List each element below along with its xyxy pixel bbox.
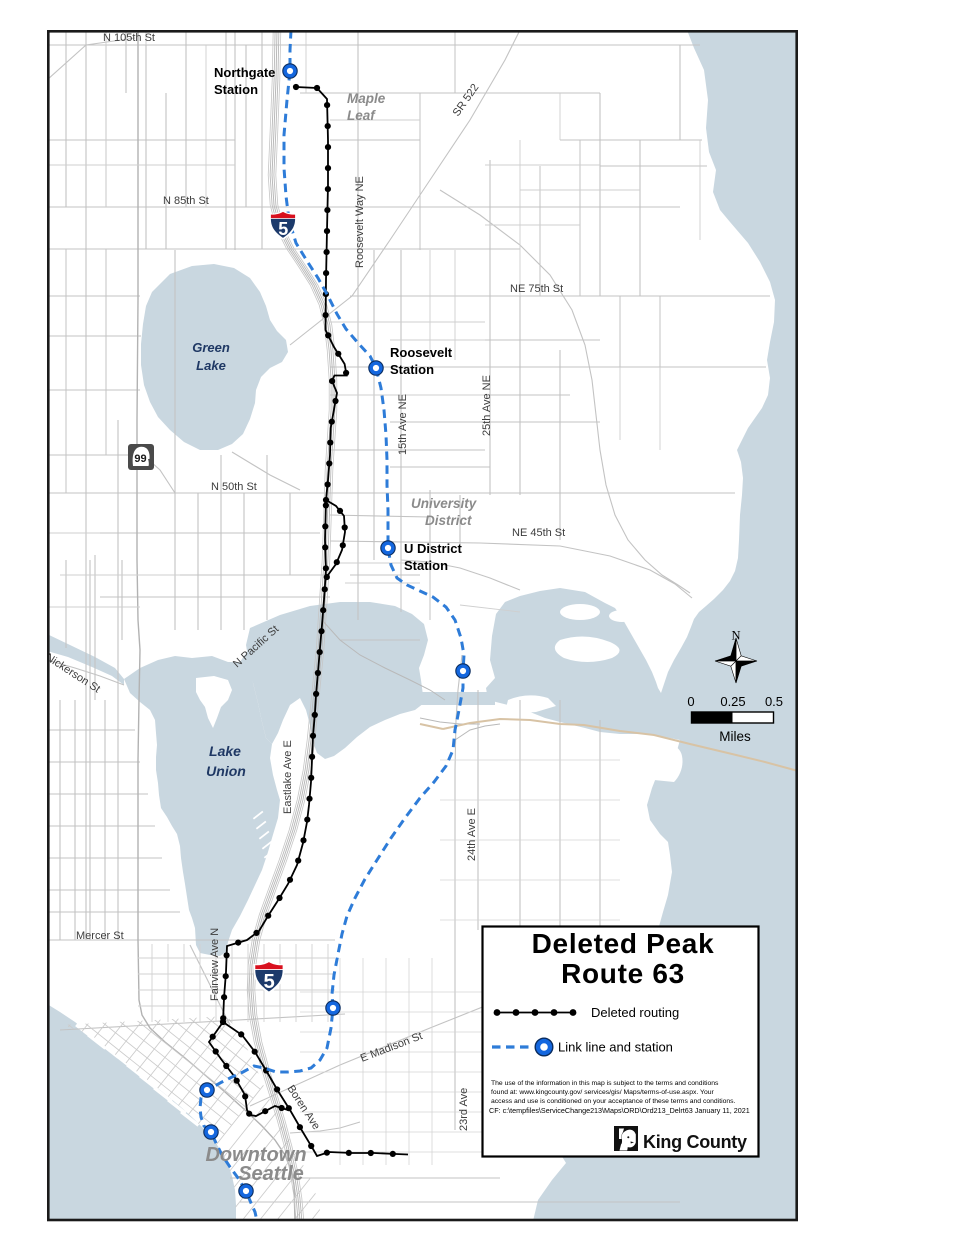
svg-text:N 50th St: N 50th St — [211, 481, 257, 493]
svg-text:NE 75th St: NE 75th St — [510, 283, 563, 295]
svg-text:Miles: Miles — [719, 729, 751, 744]
svg-text:25th Ave NE: 25th Ave NE — [481, 375, 493, 436]
svg-text:5: 5 — [264, 971, 275, 993]
svg-text:Roosevelt: Roosevelt — [390, 345, 453, 360]
svg-text:99: 99 — [134, 453, 146, 465]
svg-text:Lake: Lake — [196, 358, 226, 373]
svg-text:0.25: 0.25 — [720, 694, 745, 709]
svg-text:Station: Station — [404, 558, 448, 573]
svg-text:Station: Station — [390, 362, 434, 377]
svg-text:Union: Union — [206, 763, 246, 779]
svg-text:0: 0 — [687, 694, 694, 709]
svg-text:Maple: Maple — [347, 91, 386, 106]
svg-text:found at: www.kingcounty.gov/: found at: www.kingcounty.gov/ services/g… — [491, 1089, 714, 1096]
svg-text:23rd Ave: 23rd Ave — [458, 1088, 470, 1131]
svg-text:King County: King County — [643, 1132, 747, 1152]
svg-text:N 85th St: N 85th St — [163, 195, 209, 207]
svg-text:Northgate: Northgate — [214, 65, 275, 80]
svg-text:Eastlake Ave E: Eastlake Ave E — [282, 740, 294, 814]
svg-text:U District: U District — [404, 541, 462, 556]
svg-text:University: University — [411, 496, 478, 511]
svg-text:NE 45th St: NE 45th St — [512, 527, 565, 539]
svg-text:Roosevelt Way NE: Roosevelt Way NE — [354, 176, 366, 268]
svg-text:Leaf: Leaf — [347, 108, 376, 123]
svg-text:24th Ave E: 24th Ave E — [466, 808, 478, 861]
svg-text:N: N — [731, 629, 740, 643]
svg-text:Station: Station — [214, 82, 258, 97]
svg-text:Mercer St: Mercer St — [76, 930, 124, 942]
svg-text:Green: Green — [192, 340, 230, 355]
svg-text:Deleted Peak: Deleted Peak — [532, 928, 715, 959]
svg-text:CF: c:\tempfiles\ServiceChang: CF: c:\tempfiles\ServiceChange213\Maps\O… — [489, 1106, 750, 1115]
svg-text:Link line and station: Link line and station — [558, 1040, 673, 1055]
svg-text:5: 5 — [278, 219, 288, 239]
svg-text:15th Ave NE: 15th Ave NE — [397, 394, 409, 455]
svg-text:Fairview Ave N: Fairview Ave N — [209, 928, 221, 1001]
svg-text:Deleted routing: Deleted routing — [591, 1005, 679, 1020]
svg-text:Lake: Lake — [209, 743, 241, 759]
svg-text:N 105th St: N 105th St — [103, 32, 155, 44]
svg-text:access and use is conditioned: access and use is conditioned on your ac… — [491, 1098, 736, 1105]
svg-text:Seattle: Seattle — [238, 1163, 304, 1185]
svg-text:District: District — [425, 513, 472, 528]
svg-text:Route 63: Route 63 — [561, 958, 685, 989]
svg-text:The use of the information in: The use of the information in this map i… — [491, 1080, 719, 1087]
svg-text:0.5: 0.5 — [765, 694, 783, 709]
